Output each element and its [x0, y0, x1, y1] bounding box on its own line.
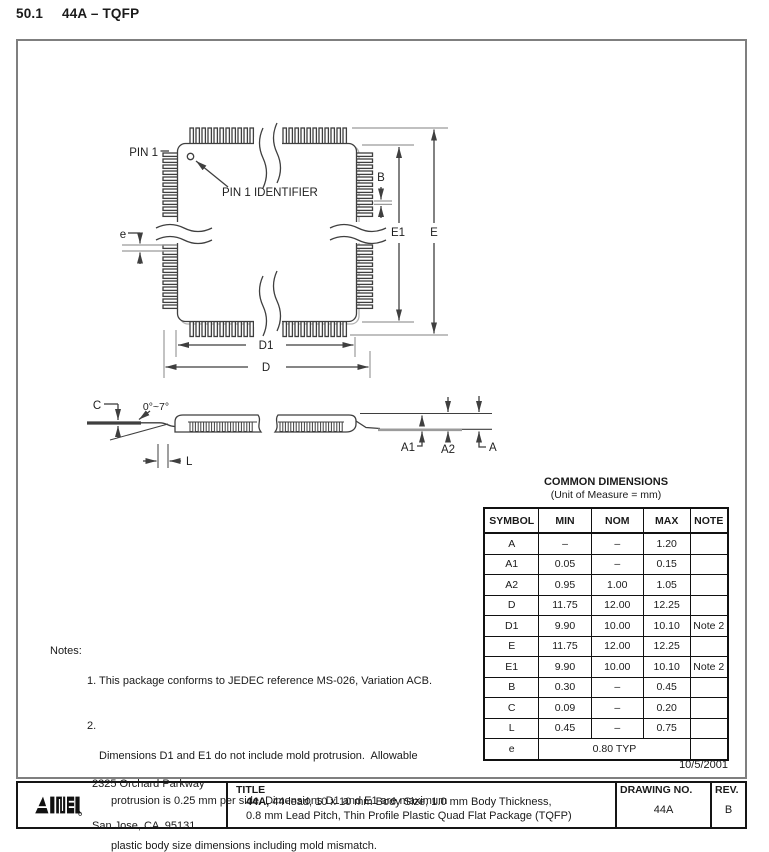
table-cell — [690, 575, 728, 596]
table-cell: A — [484, 533, 539, 554]
dim-d-label: D — [262, 362, 270, 374]
table-cell: 0.45 — [539, 718, 591, 739]
table-cell: D1 — [484, 616, 539, 637]
table-cell: 0.05 — [539, 554, 591, 575]
table-row: A20.951.001.05 — [484, 575, 728, 596]
drawing-no-label: DRAWING NO. — [617, 783, 710, 796]
dim-e1-label: E1 — [391, 227, 405, 239]
dim-a-label: A — [489, 442, 497, 454]
table-row: D19.9010.0010.10Note 2 — [484, 616, 728, 637]
pin1-identifier-dot — [187, 153, 193, 159]
rev-label: REV. — [712, 783, 745, 796]
table-cell: D — [484, 595, 539, 616]
top-view — [122, 123, 448, 378]
table-cell: 0.95 — [539, 575, 591, 596]
rev-cell: REV. B — [712, 783, 745, 827]
table-cell: 10.00 — [591, 616, 643, 637]
note-number: 1. — [87, 674, 99, 689]
table-cell: 12.00 — [591, 636, 643, 657]
table-row: E19.9010.0010.10Note 2 — [484, 657, 728, 678]
column-header: MIN — [539, 508, 591, 533]
table-cell: Note 2 — [690, 657, 728, 678]
table-row-e: e 0.80 TYP — [484, 739, 728, 760]
table-cell: – — [591, 698, 643, 719]
table-cell: 12.25 — [643, 595, 690, 616]
notes-block: Notes: 1. This package conforms to JEDEC… — [50, 644, 62, 704]
table-cell — [690, 636, 728, 657]
datasheet-page: 50.144A – TQFP — [0, 0, 769, 852]
table-cell: 0.20 — [643, 698, 690, 719]
drawing-no-value: 44A — [617, 804, 710, 816]
table-cell: A1 — [484, 554, 539, 575]
pin1-label: PIN 1 — [129, 147, 158, 159]
dim-c-label: C — [93, 400, 101, 412]
lead-angle-label: 0°~7° — [143, 401, 169, 413]
table-cell — [690, 595, 728, 616]
table-cell: 10.10 — [643, 616, 690, 637]
column-header: NOM — [591, 508, 643, 533]
title-block: 2325 Orchard Parkway San Jose, CA 95131 … — [16, 781, 747, 829]
drawing-date: 10/5/2001 — [679, 759, 728, 771]
table-cell: 12.25 — [643, 636, 690, 657]
atmel-logo-icon — [34, 790, 82, 820]
company-address: 2325 Orchard Parkway San Jose, CA 95131 — [92, 749, 205, 852]
table-cell: – — [539, 533, 591, 554]
package-description-line2: 0.8 mm Lead Pitch, Thin Profile Plastic … — [236, 810, 615, 824]
lead-hatch — [190, 422, 342, 432]
title-label: TITLE — [236, 784, 615, 796]
table-row: L0.45–0.75 — [484, 718, 728, 739]
dim-pitch-label: e — [120, 229, 126, 241]
table-cell: Note 2 — [690, 616, 728, 637]
table-cell: – — [591, 533, 643, 554]
table-row: D11.7512.0012.25 — [484, 595, 728, 616]
table-title: COMMON DIMENSIONS — [483, 476, 729, 488]
table-cell: 9.90 — [539, 616, 591, 637]
table-cell: A2 — [484, 575, 539, 596]
table-cell: 11.75 — [539, 595, 591, 616]
table-cell: 9.90 — [539, 657, 591, 678]
dim-b-label: B — [377, 172, 385, 184]
table-cell: – — [591, 677, 643, 698]
table-cell — [690, 718, 728, 739]
address-line2: San Jose, CA 95131 — [92, 819, 205, 833]
table-cell: 10.10 — [643, 657, 690, 678]
rev-value: B — [712, 804, 745, 816]
note-item: 1. This package conforms to JEDEC refere… — [87, 674, 507, 689]
drawing-no-cell: DRAWING NO. 44A — [617, 783, 712, 827]
table-cell: – — [591, 554, 643, 575]
package-description-line1: 44A, 44-lead, 10 x 10 mm Body Size, 1.0 … — [236, 796, 615, 810]
table-header-row: SYMBOL MIN NOM MAX NOTE — [484, 508, 728, 533]
table-cell — [690, 739, 728, 760]
table-cell — [690, 677, 728, 698]
address-line1: 2325 Orchard Parkway — [92, 777, 205, 791]
table-cell-span: 0.80 TYP — [539, 739, 690, 760]
table-cell: 0.75 — [643, 718, 690, 739]
dim-a1-label: A1 — [401, 442, 415, 454]
table-cell: – — [591, 718, 643, 739]
description-text: 44-lead, 10 x 10 mm Body Size, 1.0 mm Bo… — [269, 796, 551, 808]
dim-l-label: L — [186, 456, 193, 468]
pin1-identifier-label: PIN 1 IDENTIFIER — [222, 187, 318, 199]
common-dimensions: COMMON DIMENSIONS (Unit of Measure = mm)… — [483, 476, 729, 761]
company-cell: 2325 Orchard Parkway San Jose, CA 95131 — [18, 783, 228, 827]
column-header: SYMBOL — [484, 508, 539, 533]
table-cell: 11.75 — [539, 636, 591, 657]
table-row: C0.09–0.20 — [484, 698, 728, 719]
dimensions-table: SYMBOL MIN NOM MAX NOTE A––1.20 A10.05–0… — [483, 507, 729, 761]
table-cell: 0.15 — [643, 554, 690, 575]
table-cell: 0.45 — [643, 677, 690, 698]
dim-d1-label: D1 — [259, 340, 274, 352]
table-cell — [690, 533, 728, 554]
table-cell: 1.05 — [643, 575, 690, 596]
table-row: B0.30–0.45 — [484, 677, 728, 698]
table-cell: 10.00 — [591, 657, 643, 678]
dim-a2-label: A2 — [441, 444, 455, 456]
table-cell — [690, 698, 728, 719]
table-cell: 0.09 — [539, 698, 591, 719]
table-cell: 1.20 — [643, 533, 690, 554]
title-cell: TITLE 44A, 44-lead, 10 x 10 mm Body Size… — [228, 783, 617, 827]
table-subtitle: (Unit of Measure = mm) — [483, 489, 729, 501]
table-cell: 12.00 — [591, 595, 643, 616]
column-header: NOTE — [690, 508, 728, 533]
column-header: MAX — [643, 508, 690, 533]
notes-label: Notes: — [50, 644, 82, 659]
side-view-labels: C 0°~7° L A1 A2 A — [93, 400, 497, 468]
table-cell — [690, 554, 728, 575]
table-row: E11.7512.0012.25 — [484, 636, 728, 657]
table-cell: 1.00 — [591, 575, 643, 596]
table-cell: 0.30 — [539, 677, 591, 698]
table-row: A––1.20 — [484, 533, 728, 554]
note-line: This package conforms to JEDEC reference… — [99, 674, 432, 689]
table-row: A10.05–0.15 — [484, 554, 728, 575]
drawing-code: 44A, — [246, 796, 269, 808]
dim-e-label: E — [430, 227, 438, 239]
